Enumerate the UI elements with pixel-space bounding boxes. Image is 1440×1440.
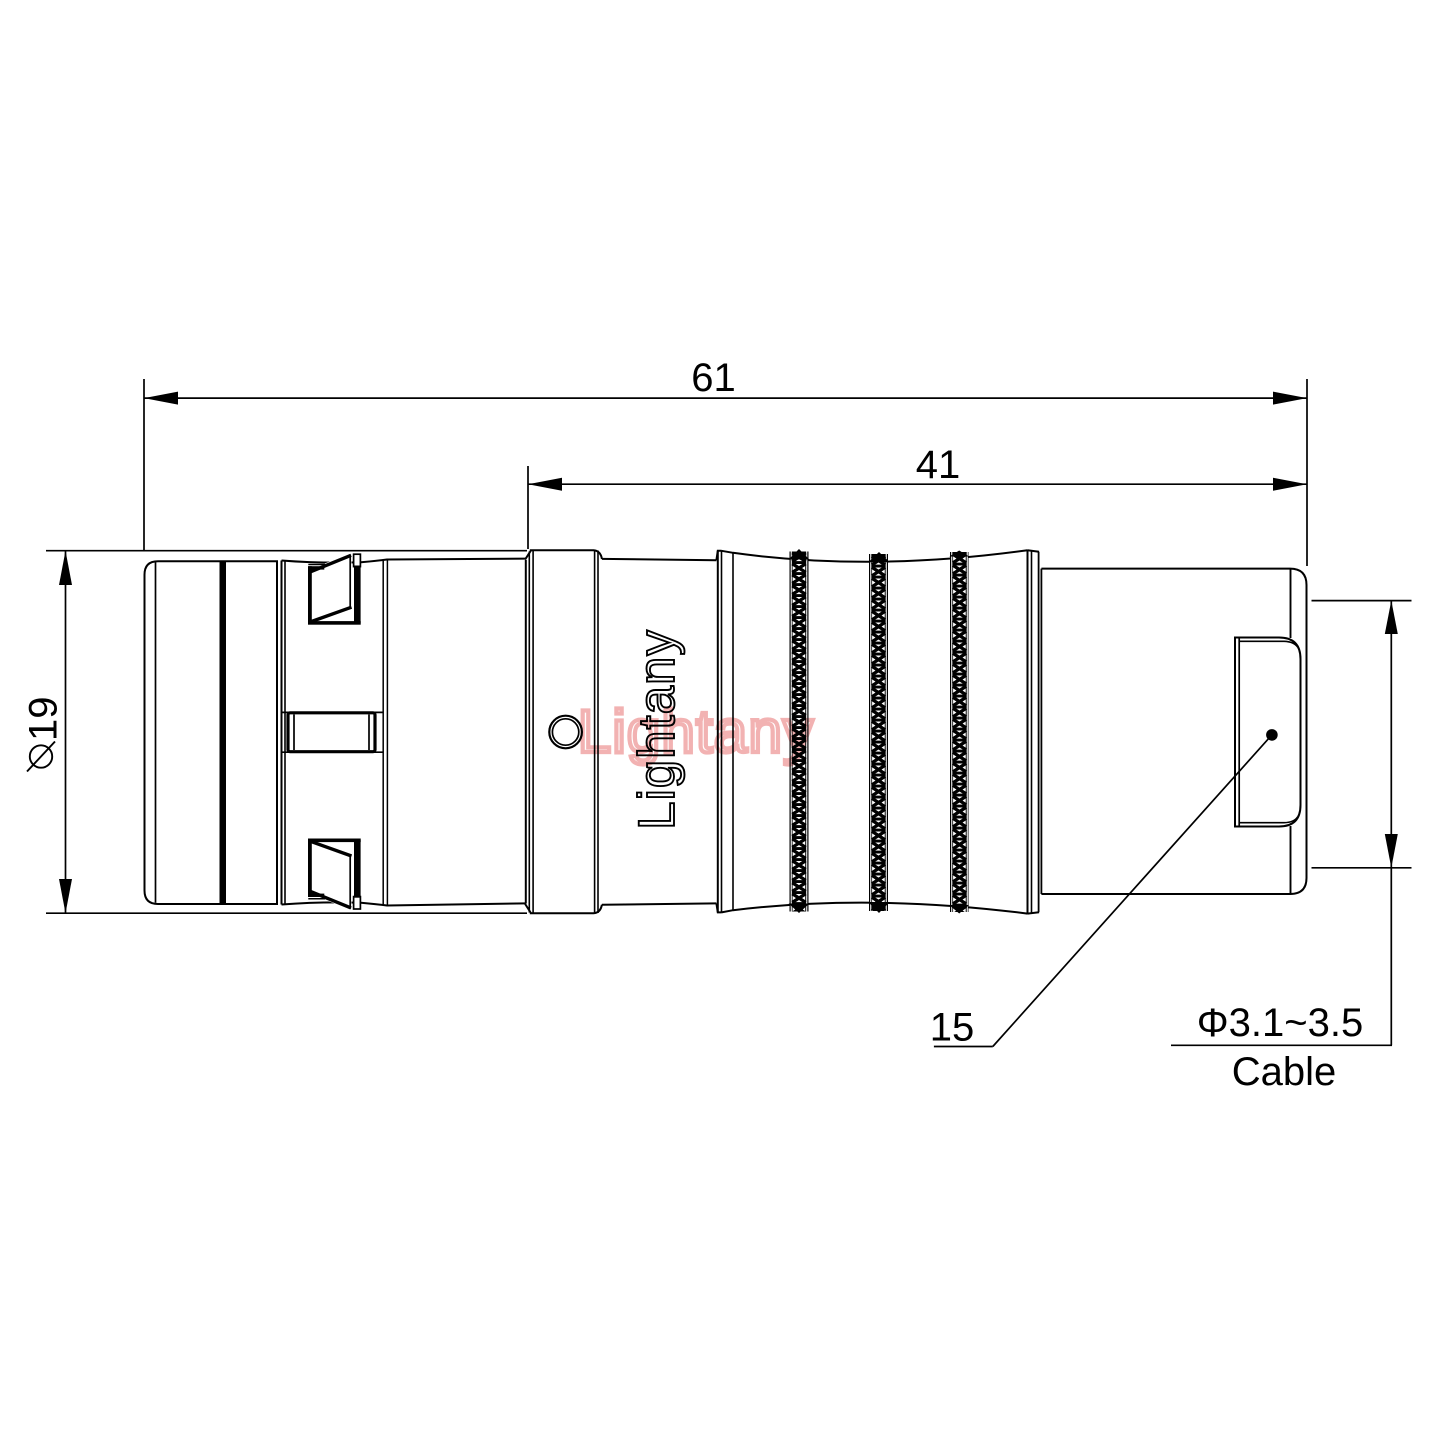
svg-text:Φ3.1~3.5: Φ3.1~3.5 [1197,1001,1363,1045]
svg-text:41: 41 [916,443,961,487]
svg-text:Lightany: Lightany [578,698,814,765]
svg-text:Cable: Cable [1232,1050,1337,1094]
svg-text:19: 19 [22,697,66,742]
svg-text:15: 15 [930,1006,975,1050]
svg-text:61: 61 [691,356,736,400]
